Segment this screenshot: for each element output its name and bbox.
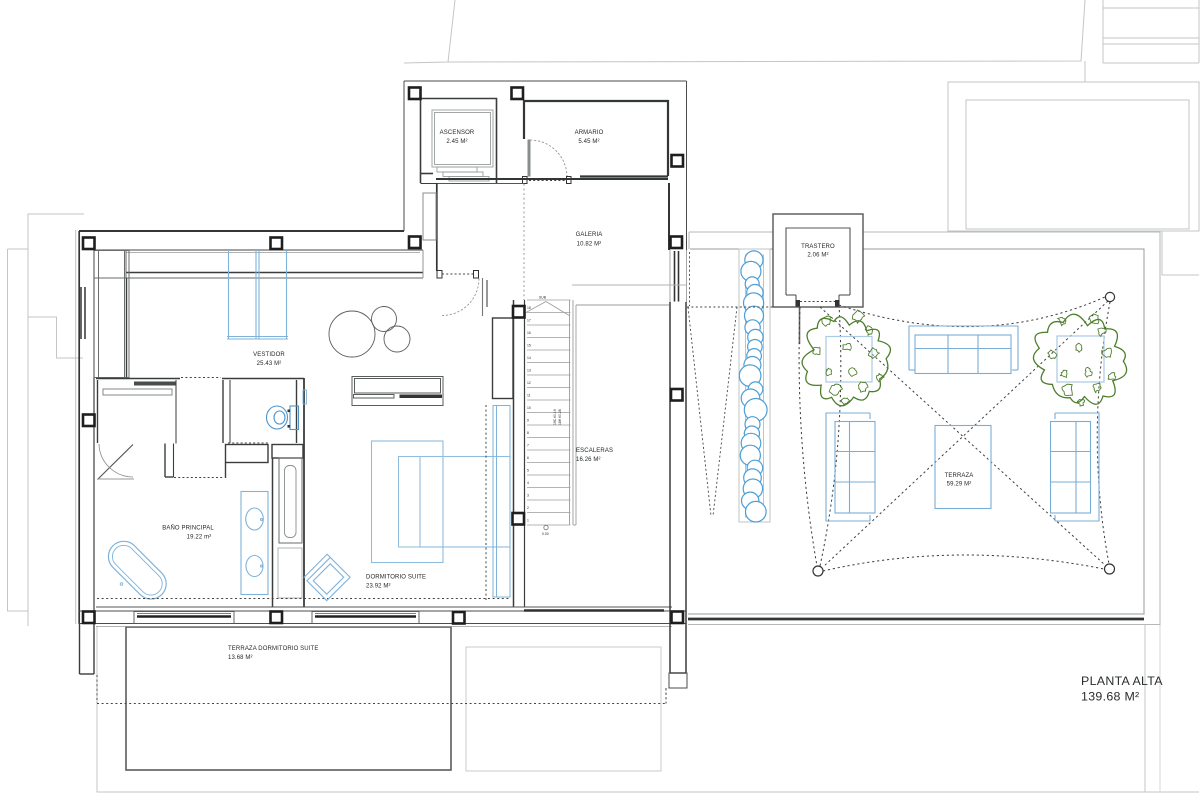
svg-text:16.26 M²: 16.26 M² — [576, 457, 601, 463]
svg-text:8: 8 — [527, 431, 529, 435]
svg-text:2.06 M²: 2.06 M² — [807, 253, 828, 259]
svg-text:11: 11 — [527, 394, 531, 398]
svg-text:12: 12 — [527, 381, 531, 385]
svg-text:1: 1 — [527, 519, 529, 523]
svg-text:15: 15 — [527, 344, 531, 348]
svg-text:GALERIA: GALERIA — [576, 232, 603, 238]
svg-text:2: 2 — [527, 506, 529, 510]
svg-text:16: 16 — [527, 331, 531, 335]
svg-text:10: 10 — [527, 406, 531, 410]
svg-text:7: 7 — [527, 444, 529, 448]
svg-text:18: 18 — [527, 306, 531, 310]
svg-text:25.43 M²: 25.43 M² — [257, 361, 282, 367]
svg-text:23.92 M²: 23.92 M² — [366, 584, 391, 590]
svg-text:59.29 M²: 59.29 M² — [947, 482, 972, 488]
svg-text:2.45 M²: 2.45 M² — [446, 139, 467, 145]
svg-text:DORMITORIO SUITE: DORMITORIO SUITE — [366, 575, 426, 581]
svg-text:19.22 m²: 19.22 m² — [187, 535, 212, 541]
svg-text:10.82 M²: 10.82 M² — [577, 242, 602, 248]
svg-text:13: 13 — [527, 369, 531, 373]
svg-text:PLANTA ALTA: PLANTA ALTA — [1081, 674, 1163, 688]
svg-text:4: 4 — [527, 481, 529, 485]
svg-text:17: 17 — [527, 319, 531, 323]
svg-text:13.68 M²: 13.68 M² — [228, 655, 253, 661]
svg-text:BAÑO PRINCIPAL: BAÑO PRINCIPAL — [162, 525, 214, 532]
svg-text:3: 3 — [527, 494, 529, 498]
svg-text:6: 6 — [527, 456, 529, 460]
svg-text:ASCENSOR: ASCENSOR — [440, 130, 475, 136]
svg-text:18H t/0.28: 18H t/0.28 — [558, 409, 562, 425]
svg-text:0.00: 0.00 — [542, 532, 549, 536]
svg-text:9: 9 — [527, 419, 529, 423]
svg-text:VESTIDOR: VESTIDOR — [253, 352, 285, 358]
svg-text:14: 14 — [527, 356, 531, 360]
svg-text:TERRAZA: TERRAZA — [945, 473, 974, 479]
svg-text:ESCALERAS: ESCALERAS — [576, 448, 613, 454]
svg-text:5: 5 — [527, 469, 529, 473]
svg-text:SUB: SUB — [539, 296, 547, 300]
svg-text:139.68 M²: 139.68 M² — [1081, 690, 1140, 704]
svg-text:19C t/0.19: 19C t/0.19 — [553, 409, 557, 425]
svg-text:TERRAZA DORMITORIO SUITE: TERRAZA DORMITORIO SUITE — [228, 646, 318, 652]
svg-text:5.45 M²: 5.45 M² — [578, 139, 599, 145]
svg-text:ARMARIO: ARMARIO — [575, 130, 604, 136]
svg-text:TRASTERO: TRASTERO — [801, 244, 835, 250]
